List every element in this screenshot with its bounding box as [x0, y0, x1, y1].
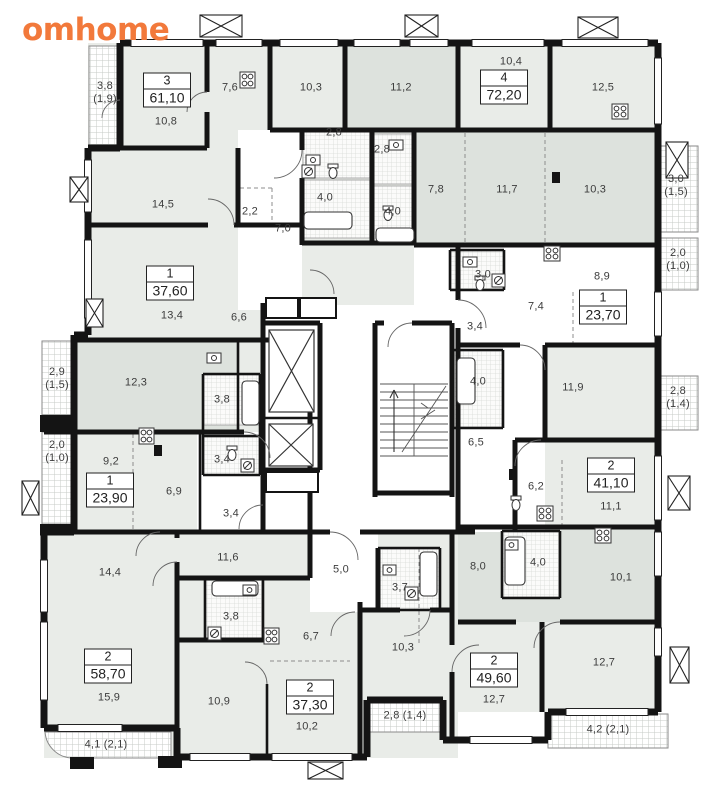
floorplan-drawing: [0, 0, 710, 800]
floorplan-page: omhome 3,8 (1,9)10,87,610,311,22,82,810,…: [0, 0, 710, 800]
omhome-logo[interactable]: omhome: [22, 12, 169, 48]
